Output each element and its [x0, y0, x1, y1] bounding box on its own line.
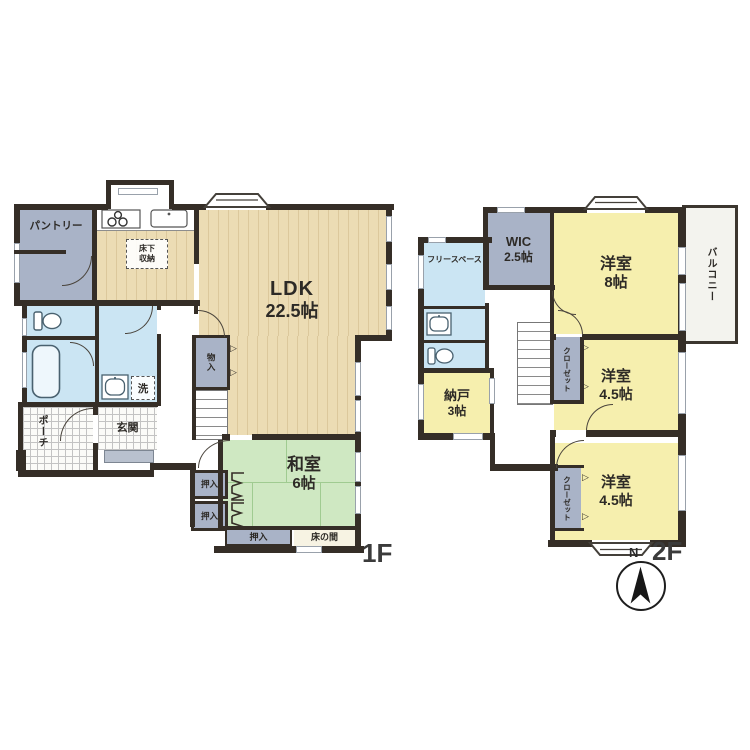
stove-icon — [101, 209, 141, 229]
closet-door-mark: ▷ — [582, 512, 589, 521]
room-washitsu-labels: 和室 6帖 — [262, 452, 346, 496]
room-wic: WIC 2.5帖 — [487, 213, 550, 285]
sliding-door-symbol — [230, 472, 246, 501]
washbasin-icon — [101, 374, 129, 400]
wall — [106, 180, 174, 185]
window — [296, 546, 322, 553]
wic-name: WIC — [506, 234, 531, 250]
kitchen-sink-icon — [150, 209, 188, 228]
wall — [22, 336, 95, 340]
washitsu-size: 6帖 — [292, 475, 315, 493]
window — [355, 400, 361, 432]
bathtub-icon — [31, 344, 61, 399]
wall — [548, 540, 592, 547]
bedroom45b-name: 洋室 — [601, 474, 631, 492]
window — [497, 207, 525, 213]
wall — [266, 204, 394, 210]
wall — [490, 464, 558, 471]
window — [355, 362, 361, 396]
toilet-icon — [427, 346, 455, 366]
ldk-name: LDK — [270, 277, 314, 301]
balcony-label: バルコニー — [704, 247, 716, 302]
window — [355, 452, 361, 482]
floor1-label: 1F — [362, 538, 392, 569]
bedroom45a-size: 4.5帖 — [599, 386, 632, 403]
room-closet-b: クローゼット — [553, 468, 581, 528]
room-closet-a: クローゼット — [553, 337, 581, 401]
window — [386, 306, 392, 330]
bay-window — [588, 542, 654, 557]
window — [678, 455, 686, 511]
compass-icon — [616, 561, 666, 611]
wall — [586, 430, 686, 437]
monoire-door-mark2: ▷ — [230, 368, 237, 377]
wall — [550, 207, 554, 334]
window — [355, 486, 361, 514]
laundry-label: 洗 — [138, 381, 149, 396]
window — [22, 318, 27, 336]
wall — [192, 336, 196, 440]
bay-window — [583, 195, 649, 210]
underfloor-storage-box: 床下収納 — [126, 239, 168, 269]
door-arc — [198, 440, 230, 468]
window — [679, 283, 686, 331]
wall — [92, 209, 97, 305]
wall — [550, 207, 587, 213]
entrance-step — [104, 450, 154, 463]
oshiire1-label: 押入 — [201, 479, 218, 489]
wall — [93, 407, 98, 415]
wall — [490, 368, 494, 378]
toilet-icon — [33, 310, 63, 332]
wall — [194, 204, 199, 264]
wall — [550, 334, 554, 404]
compass-north-label: N — [629, 545, 638, 560]
window — [678, 352, 686, 414]
wall — [214, 546, 364, 553]
wall — [550, 400, 584, 404]
nando-name: 納戸 — [444, 388, 470, 404]
wall — [18, 402, 158, 407]
wic-size: 2.5帖 — [504, 250, 533, 264]
wall — [190, 467, 195, 527]
wall — [218, 526, 361, 530]
closet-door-mark: ▷ — [582, 473, 589, 482]
wall — [157, 302, 161, 310]
bedroom45a-name: 洋室 — [601, 368, 631, 386]
wall — [483, 285, 555, 290]
room-nando: 納戸 3帖 — [424, 373, 490, 433]
window — [22, 352, 27, 388]
freespace-label: フリースペース — [427, 255, 482, 265]
ldk-size: 22.5帖 — [265, 301, 318, 323]
wall — [14, 300, 200, 306]
wall — [252, 434, 361, 440]
porch-label: ポーチ — [35, 415, 47, 448]
monoire-label: 物入 — [206, 353, 216, 372]
entrance-label: 玄関 — [117, 422, 139, 435]
wall — [93, 443, 98, 471]
balcony: バルコニー — [682, 205, 738, 344]
bay-window — [203, 192, 271, 208]
bedroom8-size: 8帖 — [604, 274, 627, 292]
window — [453, 433, 483, 440]
window — [678, 247, 686, 275]
room-entrance: 玄関 — [98, 407, 157, 450]
room-tokonoma: 床の間 — [294, 528, 355, 546]
wall — [18, 470, 154, 477]
room-pantry-label: パントリー — [29, 220, 82, 233]
wall — [580, 337, 584, 404]
floorplan-canvas: パントリー 床下収納 LDK 22.5帖 洗 ポーチ 玄関 物入 ▷ — [0, 0, 750, 750]
window — [386, 216, 392, 242]
wall — [16, 450, 26, 471]
room-pantry: パントリー — [20, 210, 92, 300]
room-freespace: フリースペース — [424, 243, 485, 307]
closet-a-label: クローゼット — [563, 347, 572, 392]
oshiire2-label: 押入 — [201, 511, 218, 521]
stairs-1f — [194, 390, 228, 440]
wall — [95, 306, 99, 406]
room-monoire: 物入 — [192, 335, 230, 390]
wall — [582, 334, 686, 340]
stairs-2f — [517, 322, 553, 405]
wall — [418, 368, 494, 373]
washbasin-icon — [426, 312, 452, 336]
wall — [106, 180, 111, 209]
wall — [550, 430, 556, 437]
window — [118, 188, 158, 195]
wall — [485, 303, 489, 371]
window — [489, 378, 495, 404]
laundry-box: 洗 — [131, 376, 155, 400]
room-oshiire-bottom: 押入 — [225, 528, 292, 546]
window — [418, 384, 424, 420]
room-ldk-lower — [228, 336, 356, 435]
washitsu-name: 和室 — [287, 455, 321, 475]
wall — [18, 407, 23, 450]
window — [418, 255, 424, 289]
wall — [550, 528, 584, 531]
bedroom8-name: 洋室 — [600, 255, 632, 274]
wall — [14, 250, 66, 254]
wall — [485, 237, 489, 289]
window — [428, 237, 446, 243]
nando-size: 3帖 — [448, 404, 467, 418]
monoire-door-mark: ▷ — [230, 344, 237, 353]
wall — [422, 340, 486, 343]
tatami-line — [252, 482, 253, 526]
closet-b-label: クローゼット — [563, 476, 572, 521]
tokonoma-label: 床の間 — [311, 532, 338, 543]
wall — [169, 180, 174, 209]
wall — [422, 306, 486, 309]
room-ldk-labels: LDK 22.5帖 — [240, 275, 344, 325]
wall — [157, 334, 161, 406]
underfloor-storage-label: 床下収納 — [138, 244, 156, 264]
window — [386, 264, 392, 290]
wall — [490, 404, 494, 436]
bedroom45b-size: 4.5帖 — [599, 492, 632, 509]
oshiire-bottom-label: 押入 — [249, 532, 267, 543]
window — [14, 243, 20, 283]
